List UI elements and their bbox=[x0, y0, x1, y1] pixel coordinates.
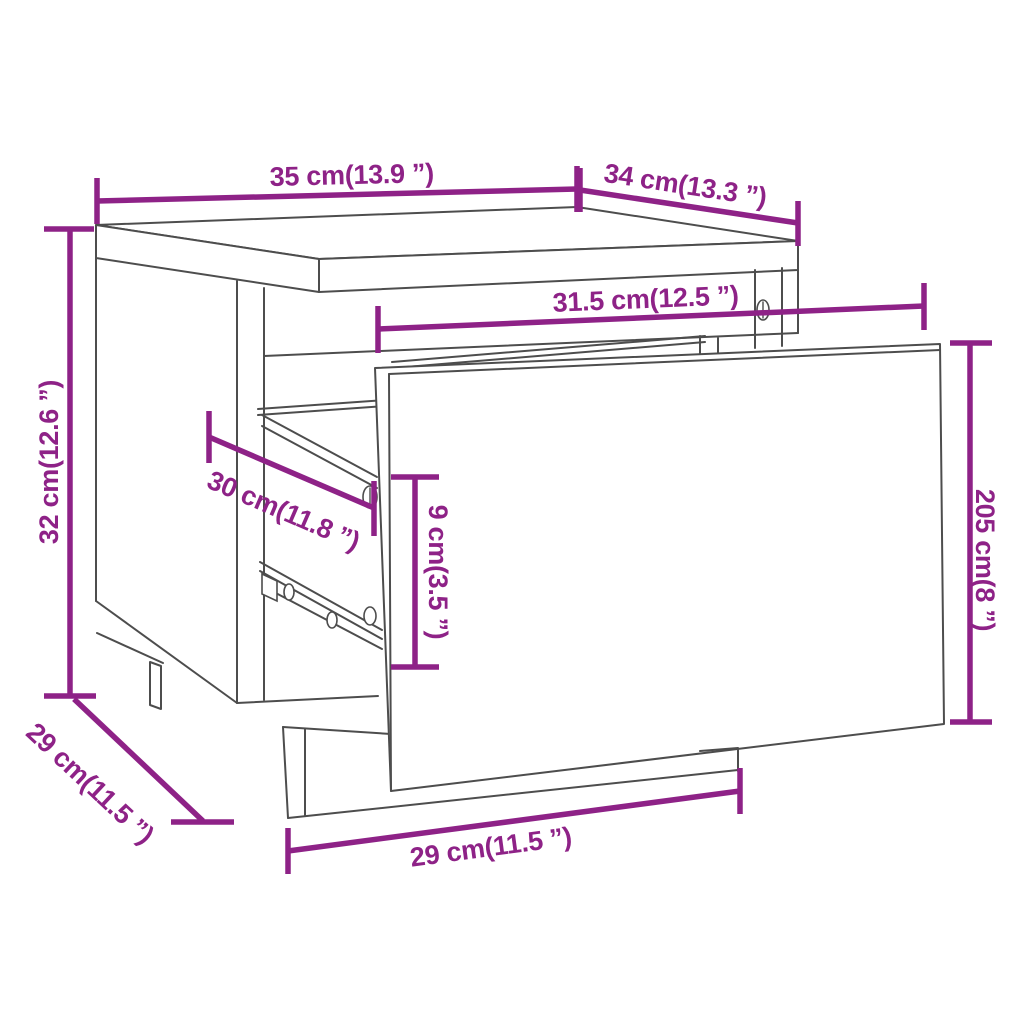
dimension-drawer-front-height: 205 cm(8 ”) bbox=[950, 343, 1000, 722]
dimension-base-width: 29 cm(11.5 ”) bbox=[288, 768, 740, 874]
upper-slide-rail-b bbox=[262, 426, 377, 488]
side-panel-bottom-edge bbox=[96, 601, 237, 703]
plinth-left-edge bbox=[283, 727, 288, 818]
dimension-label: 205 cm(8 ”) bbox=[970, 489, 1000, 631]
cavity-bottom-edge bbox=[237, 696, 378, 703]
cabinet-leg bbox=[150, 662, 161, 709]
dimension-label: 29 cm(11.5 ”) bbox=[20, 717, 159, 850]
lower-slide-rail-b bbox=[260, 571, 382, 639]
lower-slide-rail-a bbox=[260, 562, 382, 630]
diagram-canvas: 35 cm(13.9 ”) 34 cm(13.3 ”) 32 cm(12.6 ”… bbox=[0, 0, 1024, 1024]
plinth-top-edge bbox=[283, 727, 391, 734]
dimension-label: 30 cm(11.8 ”) bbox=[203, 465, 364, 557]
slide-screw-2 bbox=[327, 612, 337, 628]
dimension-line bbox=[97, 189, 577, 201]
dimension-side-depth: 29 cm(11.5 ”) bbox=[20, 699, 234, 850]
drawer-front-face bbox=[375, 344, 944, 791]
slide-screw-3 bbox=[364, 607, 376, 625]
side-panel-bottom-inner-edge bbox=[97, 633, 163, 663]
dimension-inner-width: 31.5 cm(12.5 ”) bbox=[378, 280, 924, 353]
slide-screw-1 bbox=[284, 584, 294, 600]
drawer-front-panel bbox=[375, 344, 944, 791]
furniture-dimension-diagram: 35 cm(13.9 ”) 34 cm(13.3 ”) 32 cm(12.6 ”… bbox=[0, 0, 1024, 1024]
dimension-slide-depth: 30 cm(11.8 ”) bbox=[203, 411, 374, 557]
dimension-height: 32 cm(12.6 ”) bbox=[34, 229, 96, 696]
dimension-label: 9 cm(3.5 ”) bbox=[423, 505, 453, 640]
dimension-label: 32 cm(12.6 ”) bbox=[34, 380, 64, 544]
cabinet-top-slab bbox=[96, 207, 798, 292]
dimension-label: 35 cm(13.9 ”) bbox=[269, 158, 434, 192]
